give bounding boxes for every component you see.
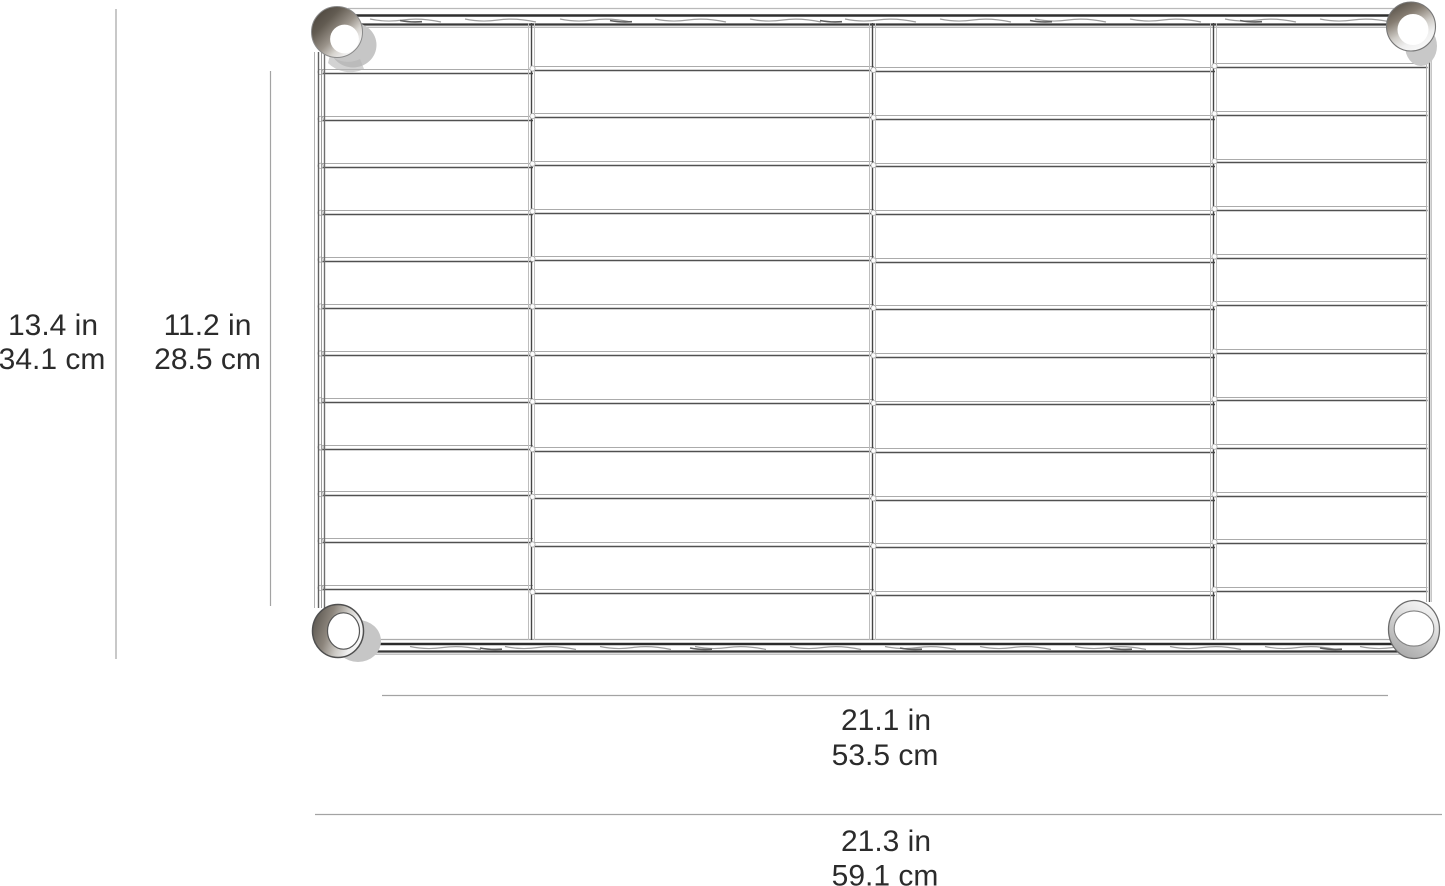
svg-text:28.5 cm: 28.5 cm [154,343,261,376]
svg-text:21.1 in: 21.1 in [841,704,931,737]
svg-text:11.2 in: 11.2 in [164,309,252,342]
svg-text:34.1 cm: 34.1 cm [0,343,105,376]
svg-text:21.3 in: 21.3 in [841,825,931,858]
svg-text:59.1 cm: 59.1 cm [832,860,939,886]
svg-text:13.4 in: 13.4 in [8,309,98,342]
svg-text:53.5 cm: 53.5 cm [832,739,939,772]
